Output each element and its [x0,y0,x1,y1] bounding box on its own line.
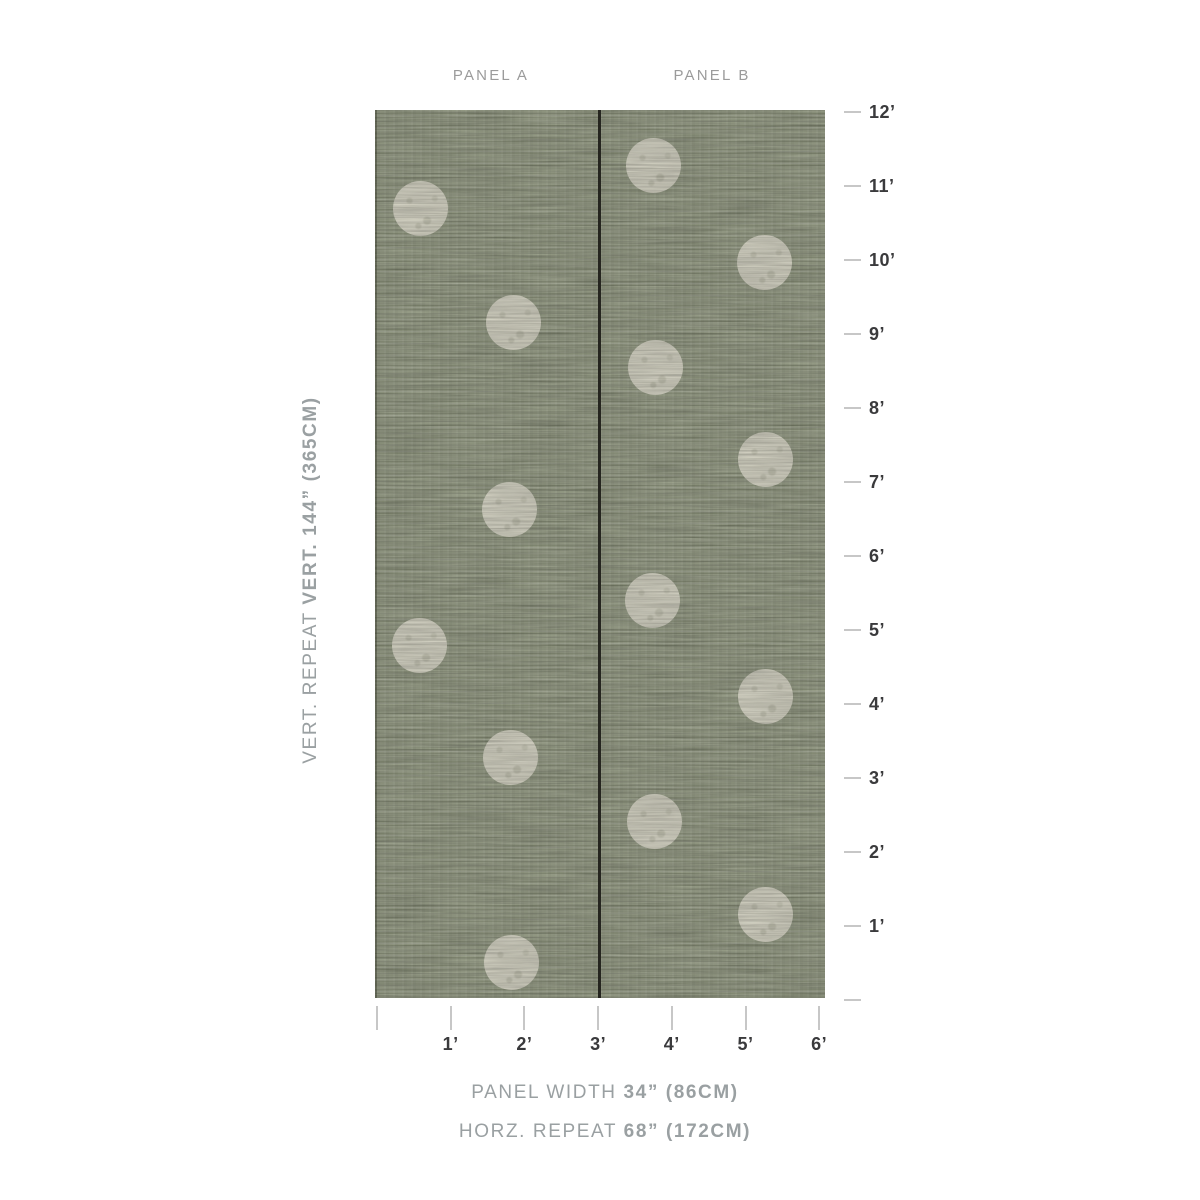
vertical-ruler-tick [844,555,861,557]
polka-dot-panel-a [483,730,538,785]
vertical-ruler-tick [844,481,861,483]
vertical-ruler-tick [844,111,861,113]
vertical-ruler-tick [844,703,861,705]
vertical-ruler-label: 10’ [869,249,896,271]
horizontal-ruler-tick [523,1006,525,1030]
polka-dot-panel-a [393,181,448,236]
horz-repeat-annotation: HORZ. REPEAT 68” (172CM) [459,1120,751,1144]
horizontal-ruler-tick [450,1006,452,1030]
polka-dot-panel-a [484,935,539,990]
panel-divider-line [598,110,601,998]
vertical-ruler-label: 12’ [869,101,896,123]
polka-dot-panel-b [626,138,681,193]
polka-dot-panel-b [737,235,792,290]
vertical-ruler-tick [844,629,861,631]
vertical-ruler-label: 9’ [869,323,885,345]
vertical-ruler-tick [844,777,861,779]
vertical-ruler-label: 2’ [869,841,885,863]
vertical-ruler-label: 3’ [869,767,885,789]
horz-repeat-value: 68” (172CM) [624,1121,751,1142]
polka-dot-panel-b [738,669,793,724]
vertical-ruler-label: 11’ [869,175,895,197]
vertical-ruler-tick [844,999,861,1001]
horizontal-ruler-label: 3’ [574,1034,622,1055]
polka-dot-panel-b [625,573,680,628]
horizontal-ruler-label: 4’ [648,1034,696,1055]
horizontal-ruler-tick [671,1006,673,1030]
vertical-repeat-annotation: VERT. REPEAT VERT. 144” (365CM) [300,396,322,763]
vertical-ruler-tick [844,185,861,187]
polka-dot-panel-b [628,340,683,395]
polka-dot-panel-a [482,482,537,537]
horizontal-ruler-tick [376,1006,378,1030]
vertical-repeat-value: VERT. 144” (365CM) [300,396,321,604]
vertical-ruler-label: 1’ [869,915,885,937]
wallpaper-swatch [375,110,825,998]
vertical-ruler-label: 7’ [869,471,885,493]
polka-dot-panel-a [392,618,447,673]
vertical-ruler-tick [844,259,861,261]
vertical-ruler-tick [844,407,861,409]
vertical-ruler-label: 4’ [869,693,885,715]
polka-dot-panel-b [627,794,682,849]
vertical-ruler-label: 8’ [869,397,885,419]
vertical-ruler-tick [844,333,861,335]
panel-a-label: PANEL A [453,66,529,86]
wallpaper-spec-diagram: PANEL A PANEL B 12’11’10’9’8’7’6’5’4’3’2… [0,0,1200,1200]
panel-b-label: PANEL B [673,66,750,86]
panel-width-annotation: PANEL WIDTH 34” (86CM) [471,1081,738,1105]
panel-width-label: PANEL WIDTH [471,1082,623,1103]
horizontal-ruler-tick [597,1006,599,1030]
horz-repeat-label: HORZ. REPEAT [459,1121,624,1142]
vertical-ruler-label: 5’ [869,619,885,641]
vertical-repeat-label: VERT. REPEAT [300,605,321,764]
horizontal-ruler-label: 6’ [795,1034,843,1055]
vertical-ruler-label: 6’ [869,545,885,567]
polka-dot-panel-b [738,432,793,487]
horizontal-ruler-tick [818,1006,820,1030]
polka-dot-panel-b [738,887,793,942]
vertical-ruler-tick [844,851,861,853]
horizontal-ruler-tick [745,1006,747,1030]
polka-dot-panel-a [486,295,541,350]
horizontal-ruler-label: 1’ [427,1034,475,1055]
horizontal-ruler-label: 2’ [500,1034,548,1055]
panel-width-value: 34” (86CM) [623,1082,738,1103]
panel-left-edge [375,110,377,998]
horizontal-ruler-label: 5’ [722,1034,770,1055]
vertical-ruler-tick [844,925,861,927]
